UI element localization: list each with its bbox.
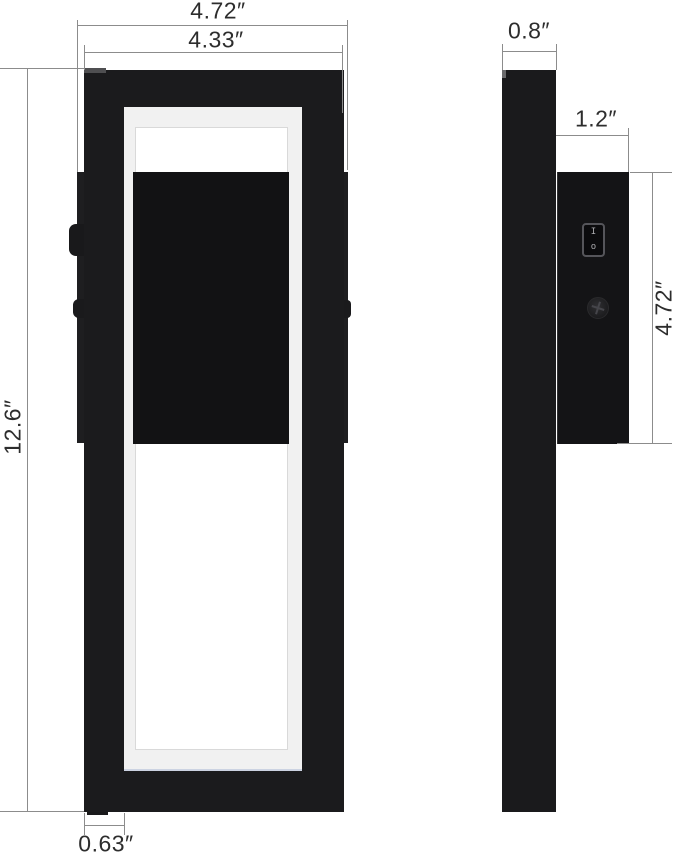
side-bar-notch	[502, 70, 506, 78]
switch-on-mark: I	[591, 228, 596, 237]
label-side-box-height: 4.72″	[653, 280, 676, 335]
dim-line-front-height	[27, 68, 28, 811]
ext-line-front-frame-left	[84, 45, 85, 70]
ext-line-side-box-height-top	[630, 172, 672, 173]
dimension-diagram: 4.72″ 4.33″ 12.6″ 0.63″ I o 0.8″ 1.2″ 4.…	[0, 0, 679, 859]
front-frame-notch	[84, 68, 106, 73]
front-inner-panel	[133, 172, 289, 444]
front-screw-bump	[344, 300, 351, 318]
side-profile-bar	[502, 70, 556, 812]
ext-line-side-box-depth	[628, 128, 629, 172]
ext-line-front-overall-right	[347, 20, 348, 170]
ext-line-front-height-top	[0, 68, 84, 69]
label-front-overall-width: 4.72″	[190, 0, 245, 23]
label-front-height: 12.6″	[2, 399, 25, 454]
dim-line-front-border	[84, 825, 125, 826]
led-ring-bottom-accent	[124, 769, 302, 771]
label-front-frame-width: 4.33″	[188, 29, 243, 52]
label-side-box-depth: 1.2″	[575, 108, 617, 131]
dim-line-side-box-depth	[556, 135, 629, 136]
dim-line-side-depth	[502, 51, 556, 52]
label-front-frame-border: 0.63″	[78, 833, 133, 856]
ext-line-front-height-bottom	[0, 811, 84, 812]
ext-line-front-overall-left	[77, 20, 78, 172]
screw-icon	[587, 297, 609, 319]
ext-line-side-depth-left	[502, 44, 503, 70]
ext-line-side-depth-right	[556, 44, 557, 70]
power-switch: I o	[582, 223, 605, 257]
switch-off-mark: o	[591, 243, 596, 252]
ext-line-front-frame-right	[342, 45, 343, 113]
ext-line-side-box-height-bottom	[617, 443, 672, 444]
label-side-depth: 0.8″	[508, 20, 550, 43]
